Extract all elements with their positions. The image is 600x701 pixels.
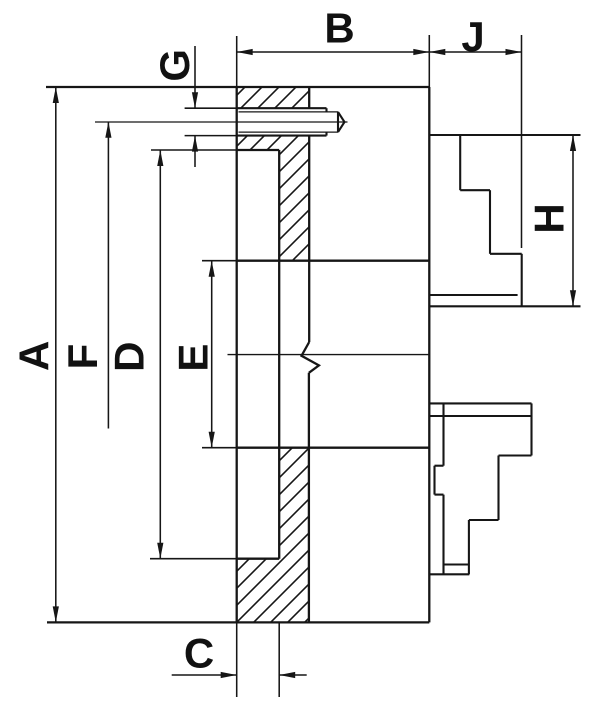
svg-text:G: G [151, 49, 198, 82]
svg-text:C: C [184, 630, 214, 677]
svg-text:B: B [324, 5, 354, 52]
svg-text:H: H [525, 203, 572, 233]
svg-text:E: E [170, 344, 217, 372]
svg-text:F: F [59, 344, 106, 370]
svg-text:A: A [11, 341, 58, 371]
svg-text:J: J [461, 13, 484, 60]
svg-text:D: D [106, 342, 153, 372]
